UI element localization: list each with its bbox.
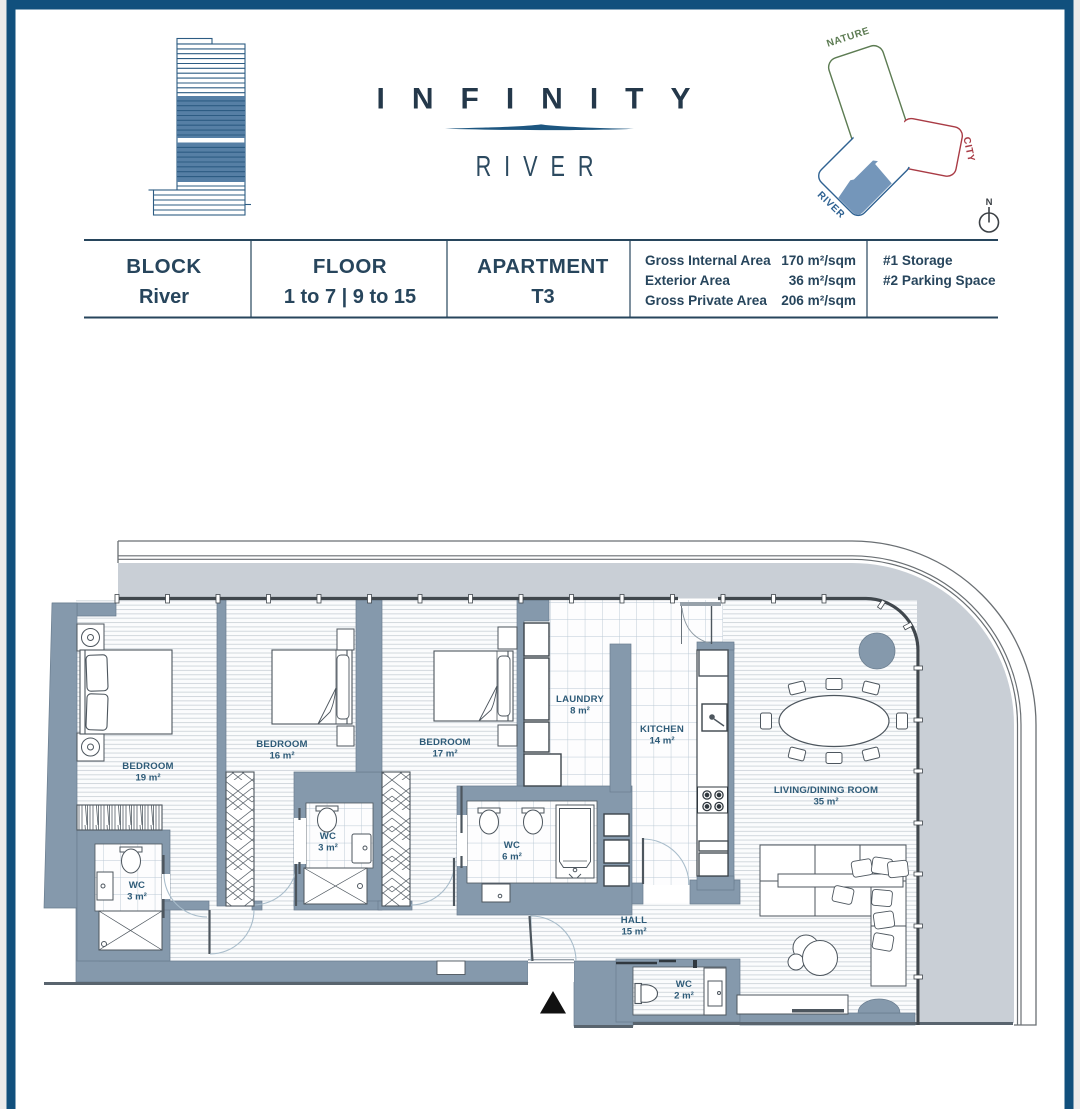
svg-text:HALL: HALL [621,915,647,926]
svg-text:INFINITY: INFINITY [377,83,718,116]
svg-text:#2 Parking Space: #2 Parking Space [883,273,996,288]
svg-text:19 m²: 19 m² [135,773,160,784]
svg-text:Gross Internal Area: Gross Internal Area [645,253,771,268]
svg-text:8 m²: 8 m² [570,706,590,717]
svg-text:2 m²: 2 m² [674,991,694,1002]
svg-text:WC: WC [676,979,692,990]
svg-text:15 m²: 15 m² [621,927,646,938]
svg-text:3 m²: 3 m² [127,892,147,903]
svg-text:River: River [139,286,189,308]
svg-text:14 m²: 14 m² [649,736,674,747]
svg-text:17 m²: 17 m² [432,749,457,760]
svg-text:WC: WC [320,831,336,842]
svg-text:BEDROOM: BEDROOM [122,761,174,772]
svg-text:N: N [986,197,993,208]
svg-text:BLOCK: BLOCK [126,255,201,278]
svg-text:KITCHEN: KITCHEN [640,724,684,735]
svg-text:Gross Private Area: Gross Private Area [645,293,767,308]
svg-text:T3: T3 [531,286,554,308]
svg-text:206 m²/sqm: 206 m²/sqm [781,293,856,308]
svg-text:LIVING/DINING ROOM: LIVING/DINING ROOM [774,785,878,796]
svg-text:1 to 7 | 9 to 15: 1 to 7 | 9 to 15 [284,286,416,308]
svg-text:BEDROOM: BEDROOM [256,739,308,750]
svg-text:3 m²: 3 m² [318,843,338,854]
svg-text:RIVER: RIVER [476,151,607,183]
svg-text:LAUNDRY: LAUNDRY [556,694,604,705]
svg-text:#1 Storage: #1 Storage [883,253,953,268]
svg-text:WC: WC [504,840,520,851]
svg-text:WC: WC [129,880,145,891]
svg-text:35 m²: 35 m² [813,797,838,808]
svg-text:Exterior Area: Exterior Area [645,273,730,288]
svg-text:170 m²/sqm: 170 m²/sqm [781,253,856,268]
svg-text:36 m²/sqm: 36 m²/sqm [789,273,856,288]
svg-text:16 m²: 16 m² [269,751,294,762]
svg-text:FLOOR: FLOOR [313,255,387,278]
svg-text:APARTMENT: APARTMENT [477,255,609,278]
svg-text:6 m²: 6 m² [502,852,522,863]
svg-text:BEDROOM: BEDROOM [419,737,471,748]
